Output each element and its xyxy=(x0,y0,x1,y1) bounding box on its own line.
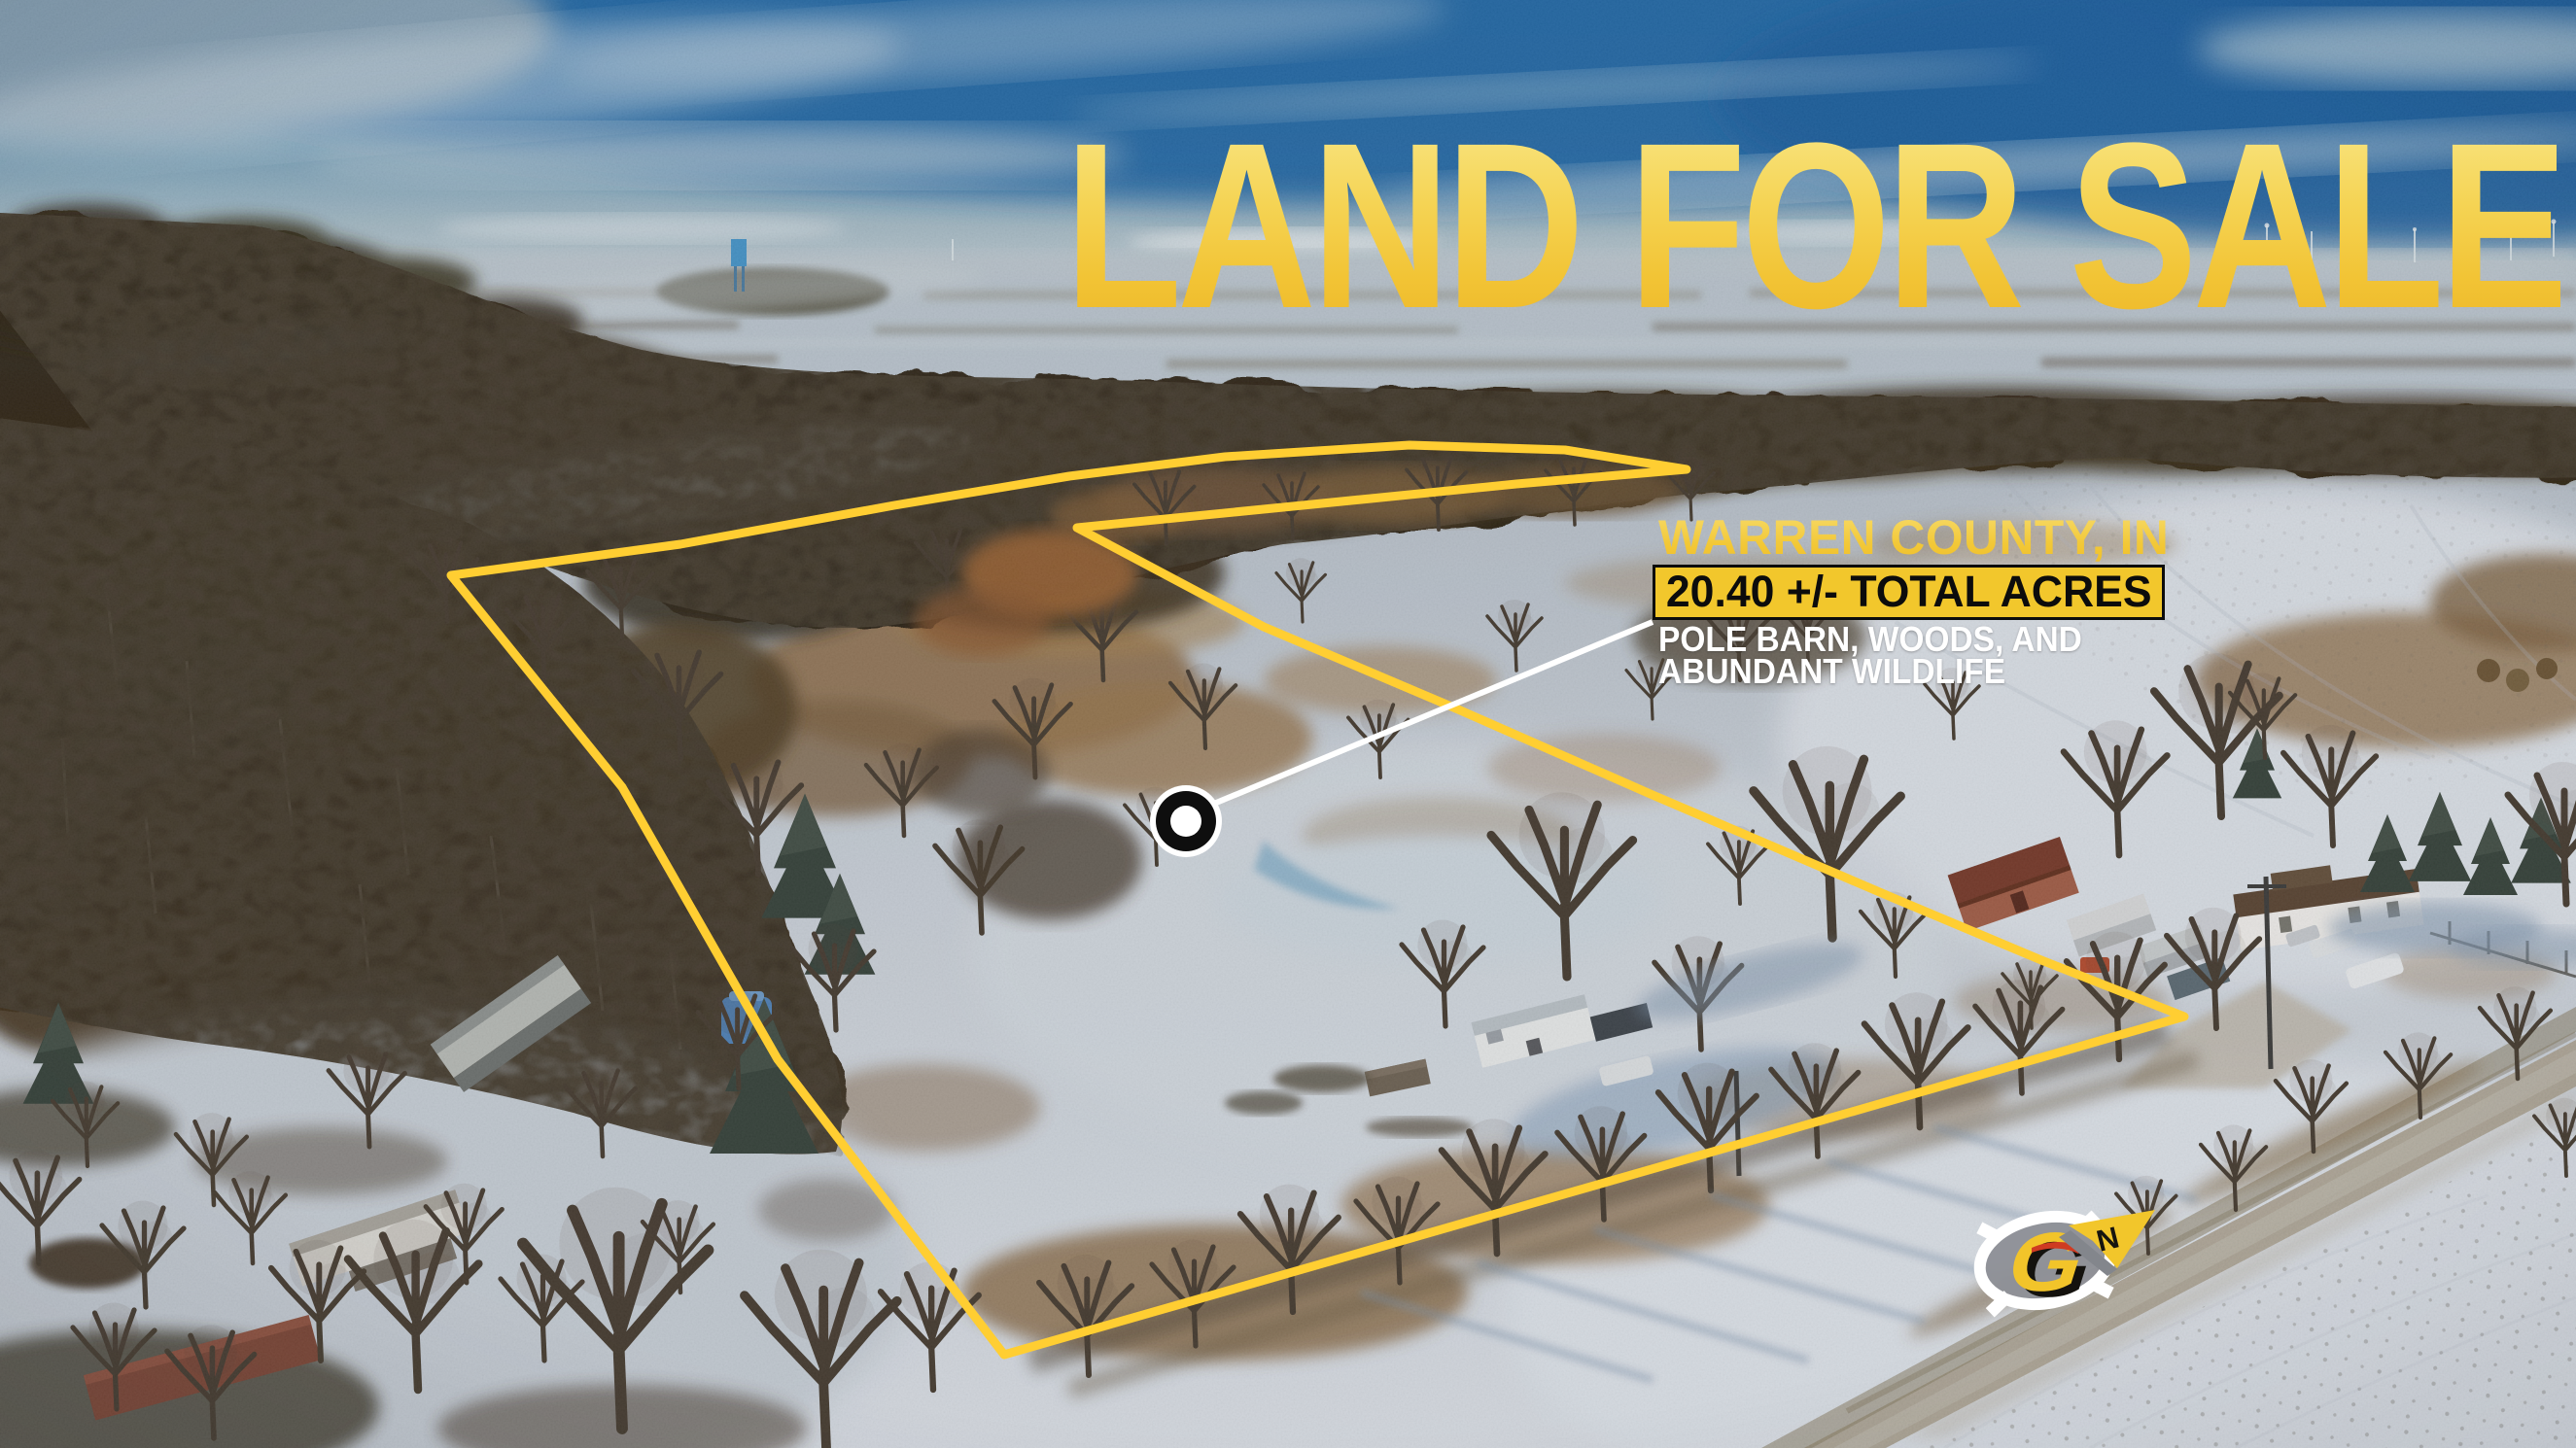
svg-text:G: G xyxy=(2004,1216,2087,1309)
